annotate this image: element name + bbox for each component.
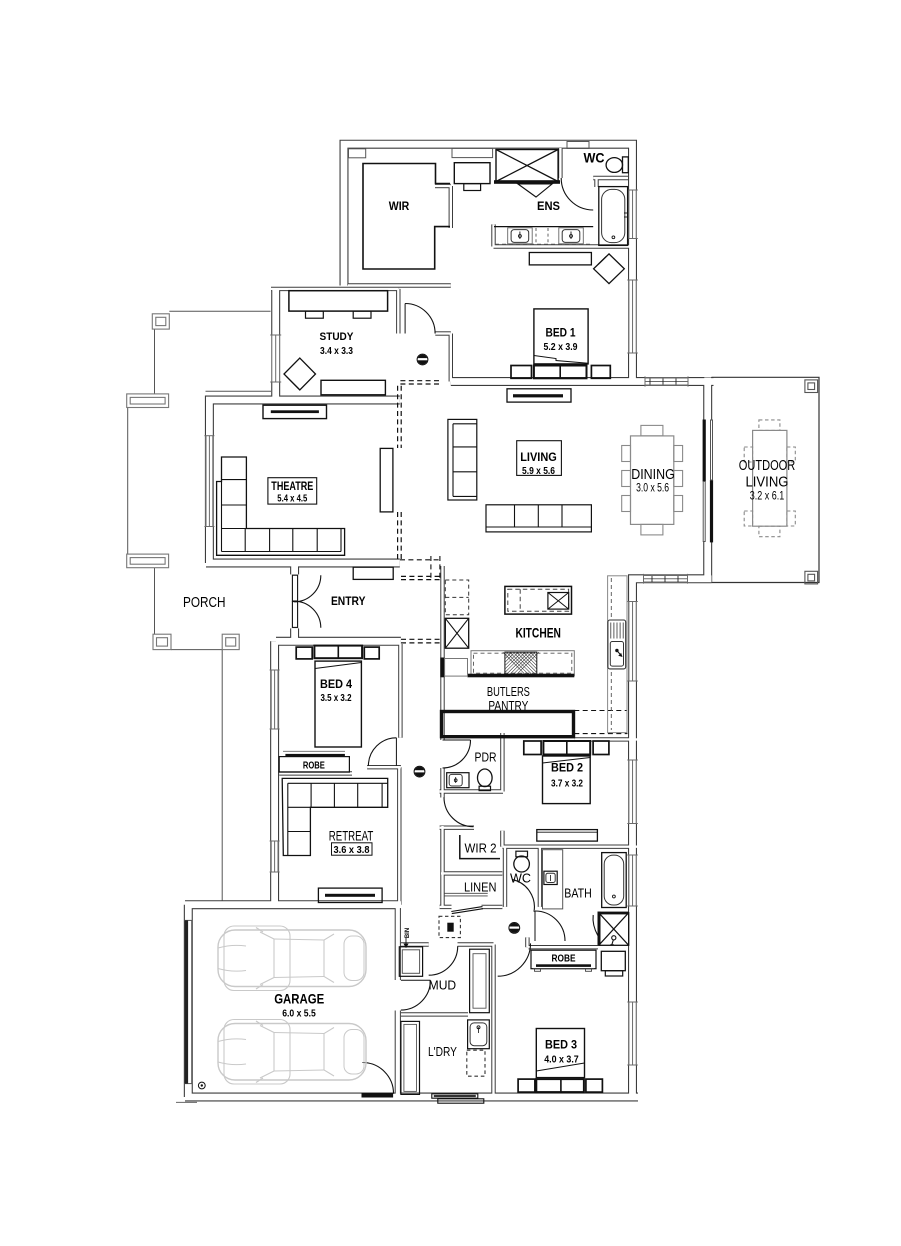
svg-text:OUTDOOR: OUTDOOR (739, 457, 796, 474)
svg-text:BIN: BIN (405, 928, 411, 938)
svg-text:5.9 x 5.6: 5.9 x 5.6 (522, 466, 555, 477)
svg-text:WC: WC (584, 150, 605, 166)
svg-text:5.4 x 4.5: 5.4 x 4.5 (277, 494, 307, 505)
svg-text:LIVING: LIVING (520, 450, 557, 464)
svg-text:3.2 x 6.1: 3.2 x 6.1 (750, 489, 785, 503)
svg-text:BED 4: BED 4 (320, 677, 352, 691)
svg-text:BED 2: BED 2 (551, 761, 583, 775)
svg-text:ROBE: ROBE (552, 953, 576, 965)
svg-text:3.0 x 5.6: 3.0 x 5.6 (636, 481, 669, 495)
svg-text:STUDY: STUDY (320, 331, 354, 343)
svg-text:GARAGE: GARAGE (274, 991, 324, 1007)
svg-text:4.0 x 3.7: 4.0 x 3.7 (544, 1055, 579, 1066)
svg-text:LINEN: LINEN (464, 880, 497, 895)
svg-text:ENTRY: ENTRY (331, 594, 366, 608)
svg-text:WIR 2: WIR 2 (465, 841, 497, 856)
svg-text:5.2 x 3.9: 5.2 x 3.9 (544, 342, 578, 353)
svg-text:3.7 x 3.2: 3.7 x 3.2 (551, 779, 583, 790)
svg-text:ENS: ENS (537, 199, 560, 213)
svg-text:6.0 x 5.5: 6.0 x 5.5 (282, 1009, 316, 1020)
svg-text:BATH: BATH (564, 886, 592, 901)
svg-text:WIR: WIR (389, 199, 410, 213)
svg-text:3.4 x 3.3: 3.4 x 3.3 (320, 346, 353, 357)
svg-text:RETREAT: RETREAT (329, 829, 374, 844)
svg-text:BED 1: BED 1 (546, 326, 576, 340)
svg-text:3.5 x 3.2: 3.5 x 3.2 (321, 693, 352, 704)
svg-text:BUTLERS: BUTLERS (487, 684, 530, 699)
svg-text:THEATRE: THEATRE (271, 479, 313, 493)
svg-text:L'DRY: L'DRY (428, 1044, 457, 1059)
svg-text:KITCHEN: KITCHEN (515, 625, 561, 641)
svg-text:PANTRY: PANTRY (488, 698, 528, 713)
svg-text:ROBE: ROBE (303, 759, 325, 771)
svg-text:WC: WC (510, 871, 531, 886)
svg-text:PORCH: PORCH (183, 594, 226, 611)
svg-text:BED 3: BED 3 (545, 1038, 577, 1052)
svg-text:3.6 x 3.8: 3.6 x 3.8 (334, 845, 371, 856)
svg-text:MUD: MUD (429, 978, 457, 993)
svg-text:PDR: PDR (475, 750, 497, 765)
